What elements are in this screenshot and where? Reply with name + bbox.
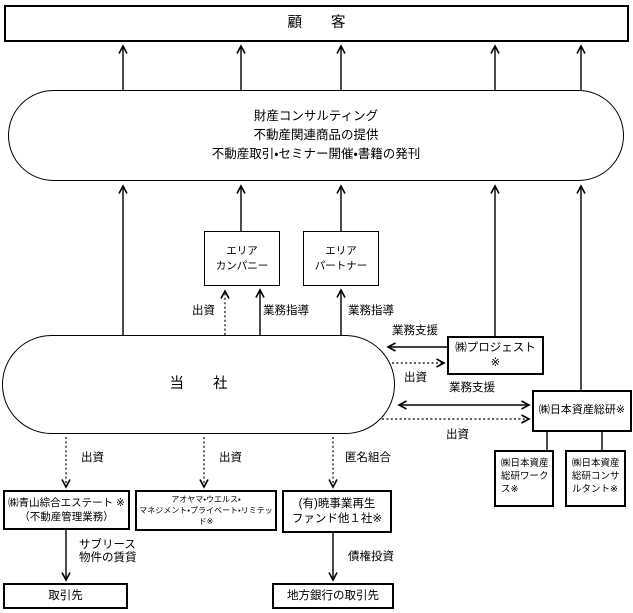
label-invest-projest: 出資 xyxy=(404,372,427,385)
aoyama-estate-line-1: ㈱青山綜合エステート ※ xyxy=(8,496,125,510)
label-anonymous-partnership: 匿名組合 xyxy=(345,452,391,465)
area-partner-line-1: エリア xyxy=(325,244,357,259)
customer-label: 顧 客 xyxy=(288,14,346,32)
area-partner-line-2: パートナー xyxy=(315,259,368,274)
services-line-2: 不動産関連商品の提供 xyxy=(253,126,378,145)
client-box: 取引先 xyxy=(3,583,128,609)
label-support-projest: 業務支援 xyxy=(392,325,438,338)
aoyama-wealth-line-1: アオヤマ・ウエルス・ xyxy=(171,494,240,505)
label-sublease-line-1: サブリース xyxy=(79,539,137,552)
nihon-shisan-soken-box: ㈱日本資産総研※ xyxy=(532,390,632,432)
soken-label: ㈱日本資産総研※ xyxy=(539,404,625,418)
services-line-1: 財産コンサルティング xyxy=(254,107,378,126)
aoyama-estate-line-2: （不動産管理業務） xyxy=(19,510,114,524)
label-sublease-line-2: 物件の賃貸 xyxy=(79,552,137,565)
aoyama-wealth-line-2: マネジメント・プライベート・リミテッド※ xyxy=(137,505,275,527)
projest-label: ㈱プロジェスト ※ xyxy=(449,341,542,370)
aoyama-estate-box: ㈱青山綜合エステート ※ （不動産管理業務） xyxy=(3,490,130,530)
area-company-line-2: カンパニー xyxy=(216,259,269,274)
client-label: 取引先 xyxy=(48,589,83,603)
services-line-3: 不動産取引・セミナー開催・書籍の発刊 xyxy=(212,145,421,164)
label-sublease: サブリース 物件の賃貸 xyxy=(79,539,137,564)
regional-bank-client-box: 地方銀行の取引先 xyxy=(272,583,394,609)
label-invest-wealth: 出資 xyxy=(219,452,242,465)
soken-works-box: ㈱日本資産総研ワークス※ xyxy=(494,450,554,507)
our-company-stadium: 当 社 xyxy=(2,335,395,434)
customer-box: 顧 客 xyxy=(4,5,629,42)
label-invest-estate: 出資 xyxy=(81,452,104,465)
area-company-box: エリア カンパニー xyxy=(204,231,280,286)
label-guidance-areacompany: 業務指導 xyxy=(263,305,309,318)
revival-fund-box: (有)暁事業再生 ファンド他１社※ xyxy=(282,490,392,533)
services-stadium: 財産コンサルティング 不動産関連商品の提供 不動産取引・セミナー開催・書籍の発刊 xyxy=(8,90,624,181)
soken-consultant-box: ㈱日本資産総研コンサルタント※ xyxy=(565,450,626,507)
revival-fund-line-1: (有)暁事業再生 xyxy=(299,497,376,512)
label-invest-areacompany: 出資 xyxy=(192,305,215,318)
our-company-label: 当 社 xyxy=(170,375,228,393)
label-invest-soken: 出資 xyxy=(446,429,469,442)
label-debt-investment: 債権投資 xyxy=(348,551,394,564)
aoyama-wealth-box: アオヤマ・ウエルス・ マネジメント・プライベート・リミテッド※ xyxy=(135,490,277,531)
soken-consultant-label: ㈱日本資産総研コンサルタント※ xyxy=(572,457,622,496)
soken-works-label: ㈱日本資産総研ワークス※ xyxy=(501,457,550,496)
label-support-soken: 業務支援 xyxy=(449,382,495,395)
area-partner-box: エリア パートナー xyxy=(303,231,379,286)
projest-box: ㈱プロジェスト ※ xyxy=(447,336,544,375)
revival-fund-line-2: ファンド他１社※ xyxy=(292,512,382,527)
label-guidance-areapartner: 業務指導 xyxy=(348,305,394,318)
regional-bank-client-label: 地方銀行の取引先 xyxy=(287,589,379,603)
business-structure-diagram: 顧 客 財産コンサルティング 不動産関連商品の提供 不動産取引・セミナー開催・書… xyxy=(0,0,633,613)
area-company-line-1: エリア xyxy=(226,244,258,259)
